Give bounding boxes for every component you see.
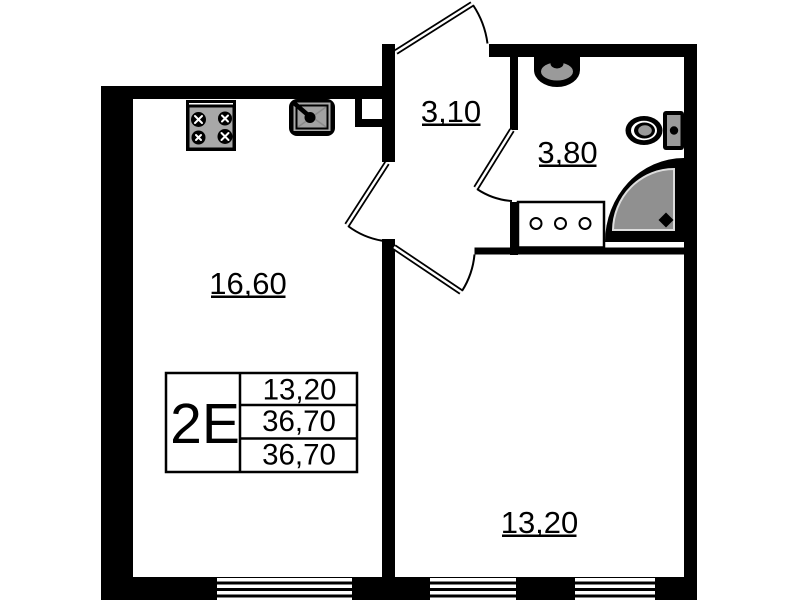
svg-text:36,70: 36,70 bbox=[262, 439, 336, 472]
svg-text:36,70: 36,70 bbox=[262, 405, 336, 438]
svg-text:13,20: 13,20 bbox=[263, 374, 337, 407]
svg-text:2E: 2E bbox=[170, 392, 240, 456]
